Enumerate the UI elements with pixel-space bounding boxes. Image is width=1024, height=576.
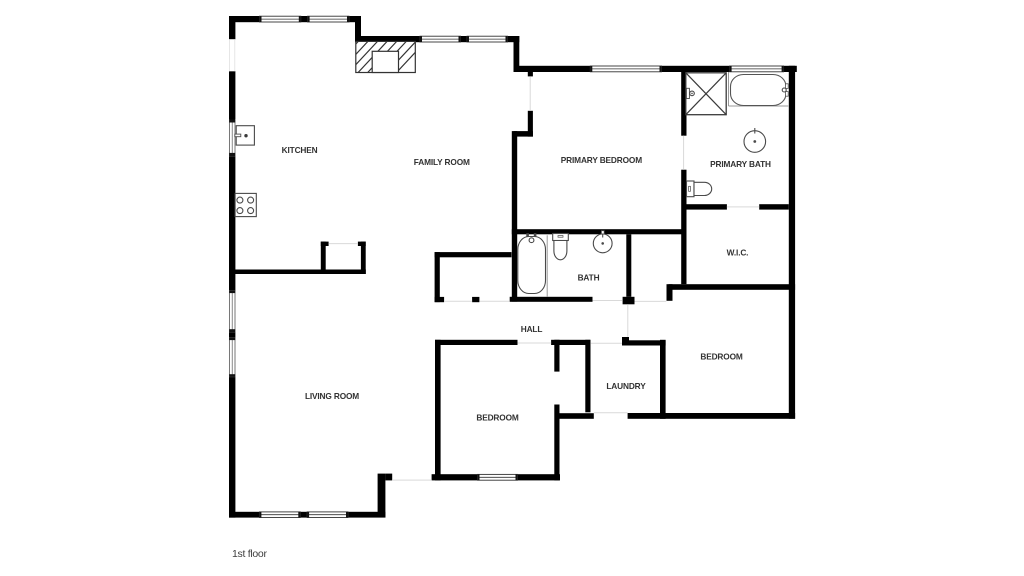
svg-text:LAUNDRY: LAUNDRY <box>606 381 646 391</box>
svg-text:BATH: BATH <box>578 272 600 282</box>
svg-text:BEDROOM: BEDROOM <box>700 351 743 361</box>
svg-text:LIVING ROOM: LIVING ROOM <box>305 391 359 401</box>
svg-text:1st floor: 1st floor <box>232 548 267 560</box>
svg-text:BEDROOM: BEDROOM <box>476 412 519 422</box>
svg-text:FAMILY ROOM: FAMILY ROOM <box>414 157 470 167</box>
svg-text:PRIMARY BEDROOM: PRIMARY BEDROOM <box>561 155 642 165</box>
svg-text:PRIMARY BATH: PRIMARY BATH <box>710 159 771 169</box>
svg-text:KITCHEN: KITCHEN <box>282 145 318 155</box>
svg-text:W.I.C.: W.I.C. <box>727 248 749 258</box>
svg-text:HALL: HALL <box>521 324 543 334</box>
